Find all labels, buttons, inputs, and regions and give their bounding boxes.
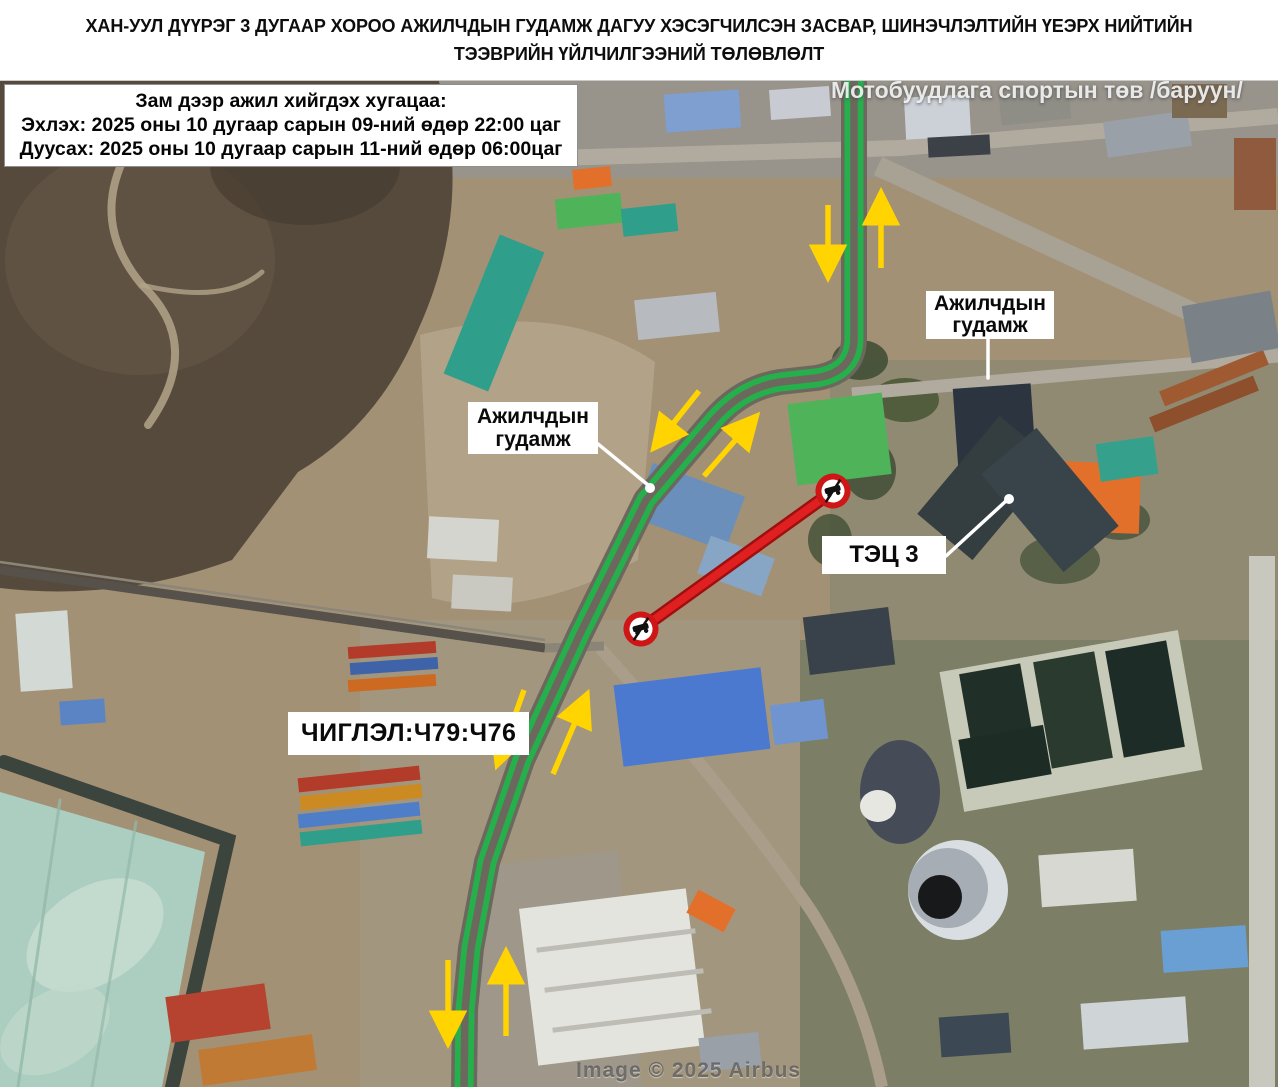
- building: [1038, 849, 1136, 908]
- page-title-line1: ХАН-УУЛ ДҮҮРЭГ 3 ДУГААР ХОРОО АЖИЛЧДЫН Г…: [0, 13, 1278, 39]
- work-schedule-box: Зам дээр ажил хийгдэх хугацаа: Эхлэх: 20…: [4, 84, 578, 167]
- page-title-line2: ТЭЭВРИЙН ҮЙЛЧИЛГЭЭНИЙ ТӨЛӨВЛӨЛТ: [0, 41, 1278, 67]
- building: [928, 134, 991, 157]
- schedule-start-date: Эхлэх: 2025 оны 10 дугаар сарын 09-ний ө…: [9, 113, 573, 137]
- bus-route-direction-label: ЧИГЛЭЛ:Ч79:Ч76: [288, 712, 529, 755]
- building: [1234, 138, 1276, 210]
- street-label-center-line1: Ажилчдын: [468, 405, 598, 428]
- terrain-ellipse: [860, 790, 896, 822]
- building: [15, 610, 72, 691]
- building: [1161, 925, 1249, 973]
- building: [769, 86, 831, 120]
- building: [519, 888, 705, 1065]
- building: [770, 699, 828, 745]
- street-label-center: Ажилчдын гудамж: [468, 402, 598, 454]
- label-pointer-dot: [1004, 494, 1014, 504]
- building: [572, 166, 612, 190]
- building: [621, 203, 679, 237]
- building: [939, 1013, 1012, 1058]
- title-bar: ХАН-УУЛ ДҮҮРЭГ 3 ДУГААР ХОРОО АЖИЛЧДЫН Г…: [0, 0, 1278, 81]
- power-plant-label: ТЭЦ 3: [822, 536, 946, 574]
- building: [664, 89, 741, 132]
- building: [59, 698, 106, 725]
- terrain-ellipse: [918, 875, 962, 919]
- building: [634, 292, 720, 340]
- street-label-right-line2: гудамж: [926, 315, 1054, 337]
- street-label-center-line2: гудамж: [468, 428, 598, 451]
- street-label-right-line1: Ажилчдын: [926, 293, 1054, 315]
- street-label-right: Ажилчдын гудамж: [926, 291, 1054, 339]
- schedule-heading: Зам дээр ажил хийгдэх хугацаа:: [9, 89, 573, 113]
- building: [803, 607, 895, 675]
- building: [787, 393, 891, 486]
- schedule-end-date: Дуусах: 2025 оны 10 дугаар сарын 11-ний …: [9, 137, 573, 161]
- building: [451, 574, 513, 611]
- building: [1081, 996, 1189, 1049]
- road-closure-map-page: Мотобуудлага спортын төв /баруун/ ХАН-УУ…: [0, 0, 1278, 1087]
- label-pointer-dot: [645, 483, 655, 493]
- map-poi-label: Мотобуудлага спортын төв /баруун/: [831, 77, 1243, 104]
- building: [427, 516, 499, 562]
- imagery-attribution: Image © 2025 Airbus: [576, 1059, 801, 1083]
- building: [1096, 436, 1159, 482]
